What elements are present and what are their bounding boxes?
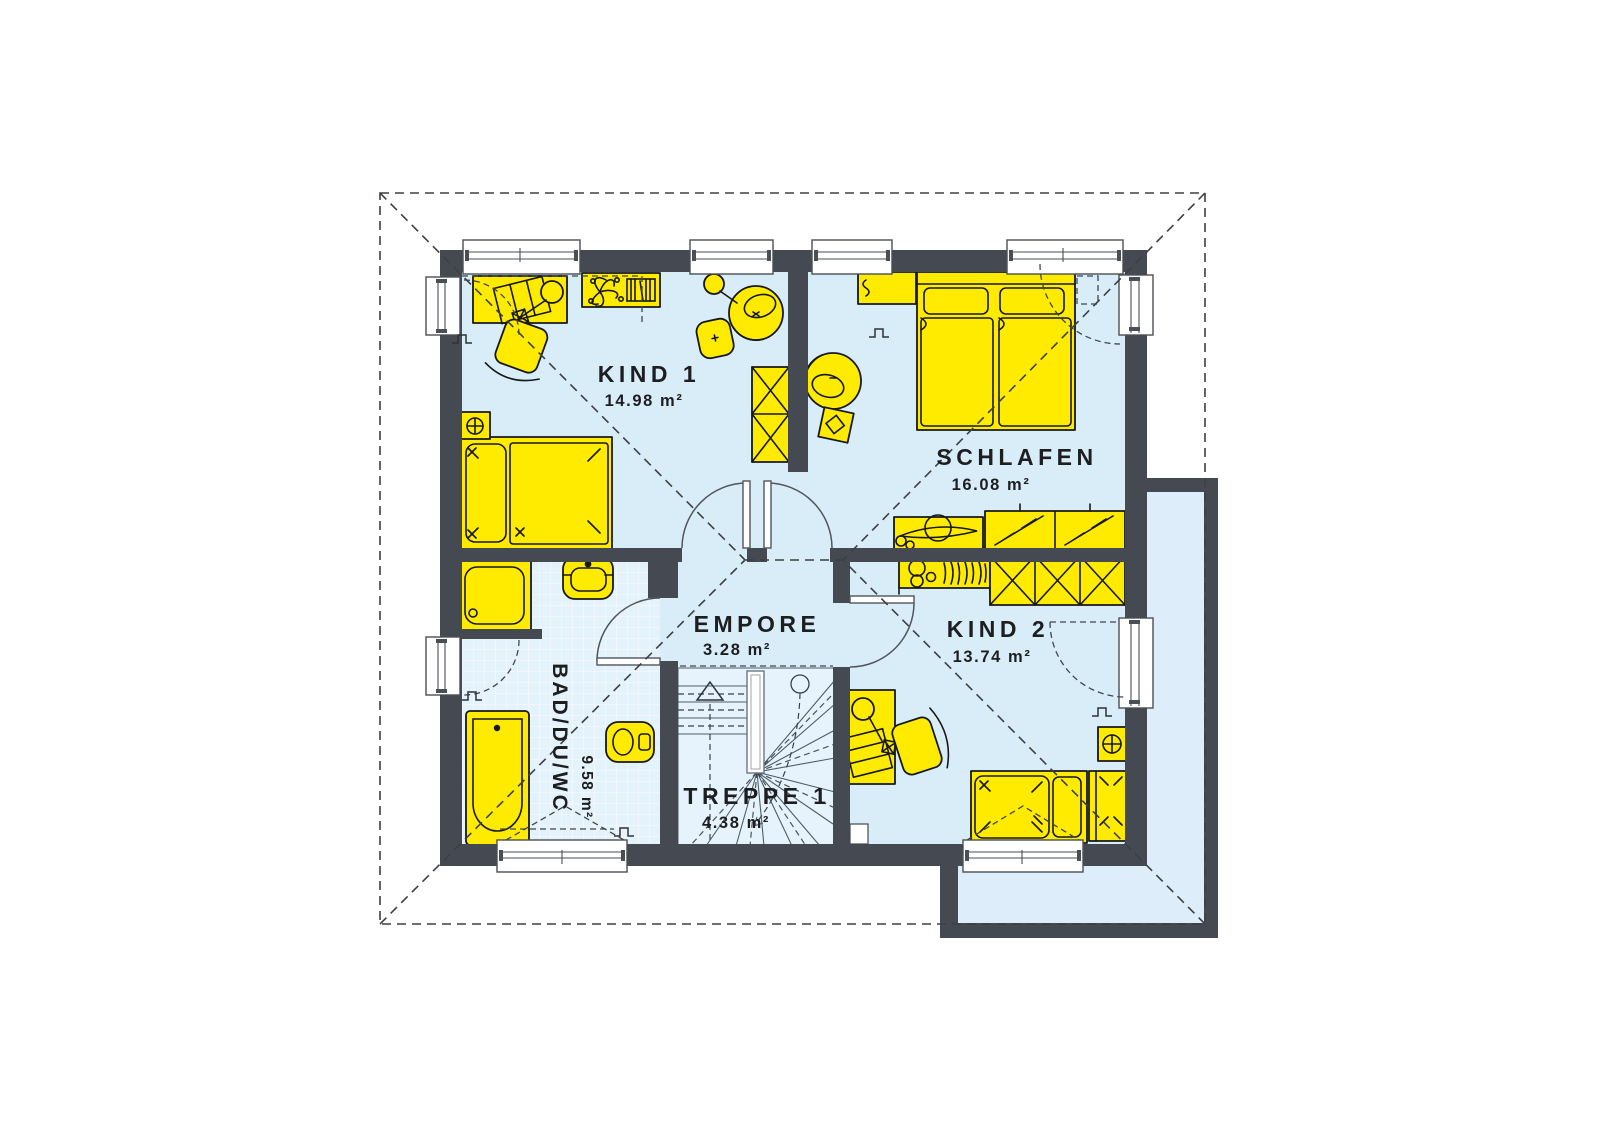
window-kind1-top-right: [690, 240, 773, 274]
wardrobe: [985, 504, 1125, 549]
window-kind2-right: [1119, 618, 1153, 708]
wardrobe-cabinet: [752, 367, 789, 462]
wall-kind2-stair: [833, 667, 850, 844]
duct-niche: [850, 824, 868, 844]
wall-balcony-bottom: [940, 923, 1218, 938]
ceiling-lamp: [1098, 727, 1127, 761]
window-kind2-bottom: [963, 840, 1083, 872]
window-schlafen-right: [1119, 275, 1153, 335]
wall-shower-stub: [456, 629, 542, 639]
bathtub: [466, 711, 529, 845]
wall-kind2-upper: [833, 548, 850, 603]
pouf: [695, 317, 736, 360]
toilet: [606, 722, 654, 762]
window-schlafen-top-right: [1007, 240, 1123, 274]
label-empore: EMPORE: [694, 611, 821, 637]
wall-balcony-right: [1204, 478, 1218, 938]
double-bed: [917, 272, 1075, 430]
label-schlafen: SCHLAFEN: [936, 444, 1097, 470]
area-kind2: 13.74 m²: [953, 648, 1032, 666]
stair-stringer: [747, 671, 764, 773]
shower: [458, 560, 531, 631]
wall-right: [1125, 250, 1147, 866]
wall-bad-upper: [648, 548, 678, 598]
round-chair: [729, 286, 783, 340]
wardrobe-x: [990, 556, 1125, 605]
window-kind1-left: [426, 277, 460, 335]
plant-shelf: [582, 273, 660, 307]
window-schlafen-top-left: [812, 240, 892, 274]
sink: [563, 557, 613, 599]
wall-kind1-schlafen: [788, 272, 808, 472]
label-treppe1: TREPPE 1: [683, 783, 830, 809]
label-kind2: KIND 2: [947, 616, 1049, 642]
desk-lamp-icon: [852, 698, 874, 720]
wall-balcony-left: [940, 866, 958, 938]
bed: [971, 771, 1087, 843]
desk: [844, 690, 896, 784]
window-bad-bottom: [497, 840, 627, 872]
open-shelf: [899, 558, 990, 594]
wall-bad-stair: [660, 661, 678, 844]
window-kind1-top-left: [463, 240, 580, 274]
window-bad-left: [426, 637, 460, 695]
floorplan-drawing: KIND 1 14.98 m² SCHLAFEN 16.08 m² KIND 2…: [0, 0, 1600, 1132]
label-kind1: KIND 1: [598, 361, 700, 387]
side-table: [818, 407, 854, 443]
label-bad: BAD/DU/WC: [548, 663, 571, 812]
bed: [460, 437, 612, 549]
area-treppe1: 4.38 m²: [702, 814, 770, 832]
desk-lamp-icon: [541, 281, 563, 303]
area-kind1: 14.98 m²: [605, 392, 684, 410]
area-schlafen: 16.08 m²: [952, 476, 1031, 494]
floorplan-page: KIND 1 14.98 m² SCHLAFEN 16.08 m² KIND 2…: [0, 0, 1600, 1132]
area-empore: 3.28 m²: [703, 641, 771, 659]
round-chair: [805, 353, 861, 409]
nightstand-left: [858, 272, 916, 304]
area-bad: 9.58 m²: [578, 755, 595, 818]
dresser-with-mirror: [894, 515, 983, 549]
nightstand: [461, 412, 490, 439]
bench: [1089, 771, 1127, 841]
wall-schlafen-kind2: [830, 548, 1125, 562]
